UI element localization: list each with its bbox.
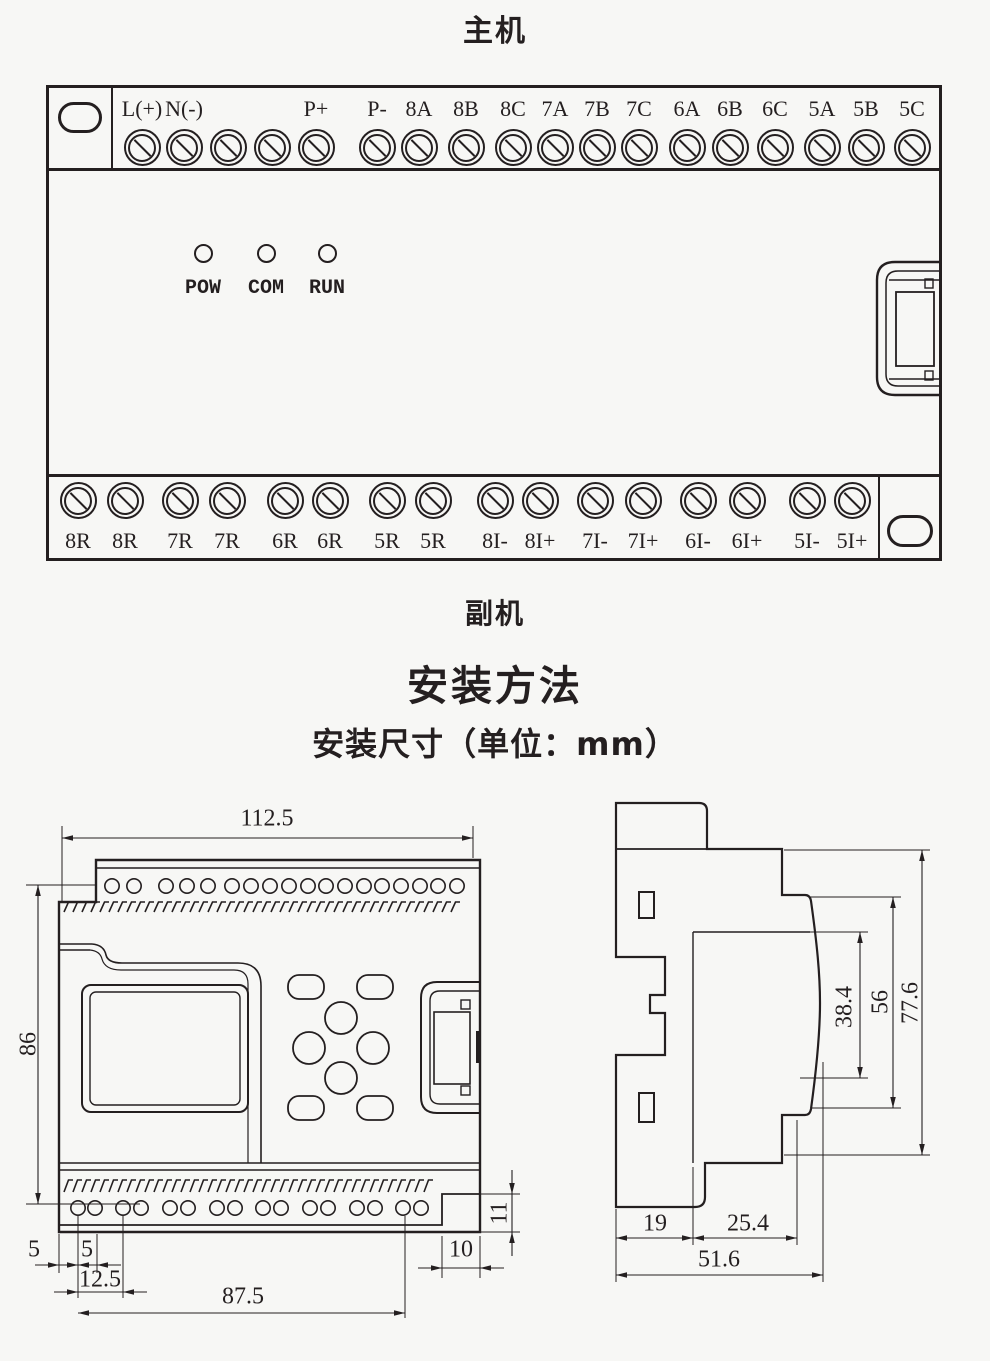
screw-terminal	[415, 482, 452, 519]
secondary-unit-title: 副机	[0, 592, 990, 632]
install-method-heading: 安装方法	[0, 652, 990, 712]
screw-terminal	[210, 129, 247, 166]
led-label: POW	[168, 277, 238, 300]
screw-terminal	[312, 482, 349, 519]
dim-hole-span: 87.5	[222, 1284, 264, 1311]
screw-terminal	[680, 482, 717, 519]
install-dimensions-subheading: 安装尺寸（单位：mm）	[0, 719, 990, 765]
screw-terminal	[267, 482, 304, 519]
expansion-port-front-icon	[421, 982, 480, 1113]
screw-terminal	[522, 482, 559, 519]
screw-terminal	[495, 129, 532, 166]
screw-terminal	[577, 482, 614, 519]
led-label: RUN	[292, 277, 362, 300]
main-unit-diagram: L(+)N(-)P+P-8A8B8C7A7B7C6A6B6C5A5B5C POW…	[46, 85, 942, 561]
screw-terminal	[834, 482, 871, 519]
led-indicator	[194, 244, 213, 263]
bottom-divider-line	[878, 477, 880, 558]
dim-edge-offset: 5	[28, 1237, 40, 1264]
screw-terminal	[401, 129, 438, 166]
screw-terminal	[894, 129, 931, 166]
expansion-port-icon	[868, 254, 946, 402]
mounting-hole	[887, 515, 933, 547]
dim-body-height: 56	[868, 990, 895, 1014]
top-terminal-strip: L(+)N(-)P+P-8A8B8C7A7B7C6A6B6C5A5B5C	[49, 88, 939, 171]
screw-terminal	[477, 482, 514, 519]
mounting-hole	[58, 102, 102, 133]
keypad-buttons	[288, 975, 393, 1120]
screw-terminal	[166, 129, 203, 166]
screw-terminal	[537, 129, 574, 166]
page: { "page": { "background": "#f7f7f5", "li…	[0, 0, 990, 1361]
dim-front-width: 112.5	[240, 806, 293, 833]
terminal-label: 5I+	[812, 528, 892, 554]
main-unit-title: 主机	[0, 6, 990, 50]
dim-notch-height: 11	[487, 1201, 514, 1224]
front-view-drawing	[59, 860, 480, 1232]
screw-terminal	[621, 129, 658, 166]
led-label: COM	[231, 277, 301, 300]
dim-front-height: 86	[16, 1032, 43, 1056]
led-indicator	[257, 244, 276, 263]
screw-terminal	[124, 129, 161, 166]
dim-total-height: 77.6	[898, 982, 925, 1024]
screw-terminal	[107, 482, 144, 519]
screw-terminal	[729, 482, 766, 519]
screw-terminal	[757, 129, 794, 166]
dim-front-depth: 25.4	[727, 1211, 769, 1238]
terminal-label: N(-)	[144, 96, 224, 122]
side-view-drawing	[616, 803, 820, 1207]
terminal-label: 5C	[872, 96, 952, 122]
dim-hole-gap: 5	[81, 1237, 93, 1264]
screw-terminal	[579, 129, 616, 166]
screw-terminal	[359, 129, 396, 166]
screw-terminal	[209, 482, 246, 519]
led-indicator	[318, 244, 337, 263]
screw-terminal	[625, 482, 662, 519]
screw-terminal	[448, 129, 485, 166]
dim-notch-width: 10	[449, 1237, 473, 1264]
dim-panel-height: 38.4	[832, 986, 859, 1028]
screw-terminal	[298, 129, 335, 166]
dim-total-depth: 51.6	[698, 1247, 740, 1274]
screw-terminal	[712, 129, 749, 166]
screw-terminal	[669, 129, 706, 166]
installation-drawings	[0, 770, 990, 1361]
dim-clip-depth: 19	[643, 1211, 667, 1238]
screw-terminal	[804, 129, 841, 166]
screw-terminal	[789, 482, 826, 519]
screw-terminal	[254, 129, 291, 166]
screw-terminal	[60, 482, 97, 519]
screw-terminal	[369, 482, 406, 519]
dim-hole-pitch: 12.5	[79, 1267, 121, 1294]
screw-terminal	[162, 482, 199, 519]
screw-terminal	[848, 129, 885, 166]
